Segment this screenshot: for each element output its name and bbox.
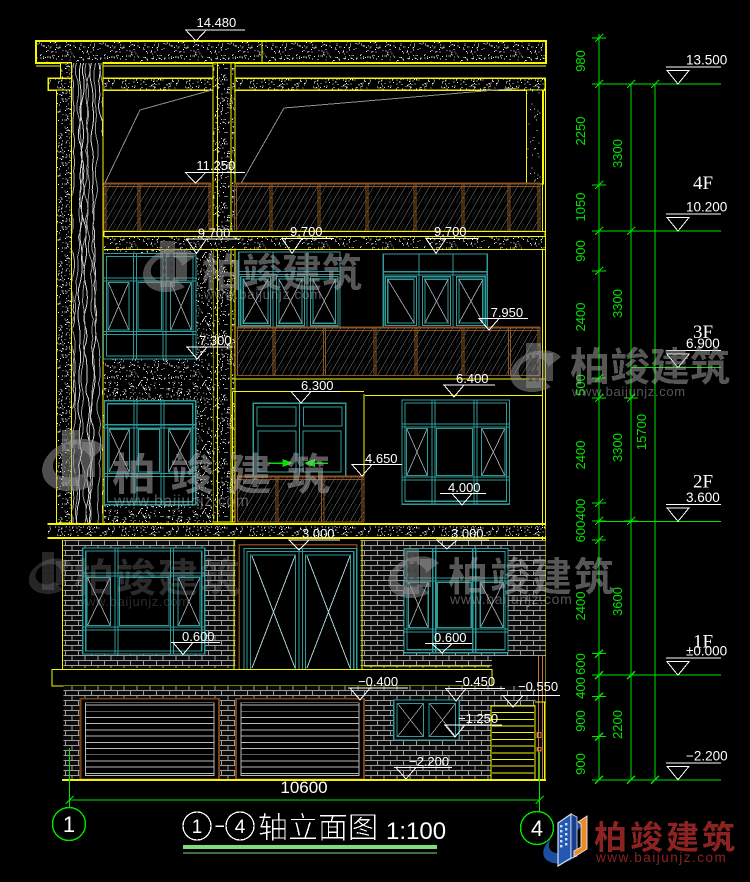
- svg-text:−1.250: −1.250: [458, 711, 498, 726]
- svg-text:www.baijunjz.com: www.baijunjz.com: [203, 287, 322, 302]
- svg-text:2400: 2400: [573, 303, 588, 332]
- svg-text:1F: 1F: [693, 632, 713, 653]
- svg-text:980: 980: [573, 50, 588, 72]
- svg-text:www.baijunjz.com: www.baijunjz.com: [571, 384, 686, 399]
- svg-text:7.300: 7.300: [199, 333, 232, 348]
- svg-text:−0.550: −0.550: [518, 679, 558, 694]
- svg-text:3300: 3300: [610, 139, 625, 168]
- svg-text:−2.200: −2.200: [409, 754, 449, 769]
- svg-text:4.000: 4.000: [448, 480, 481, 495]
- svg-text:900: 900: [573, 240, 588, 262]
- svg-text:9.700: 9.700: [198, 226, 231, 241]
- svg-text:1: 1: [63, 812, 75, 837]
- svg-text:10600: 10600: [280, 778, 327, 797]
- svg-text:13.500: 13.500: [686, 53, 727, 68]
- svg-text:0.600: 0.600: [434, 630, 467, 645]
- svg-text:400: 400: [573, 499, 588, 521]
- svg-text:4: 4: [235, 817, 246, 838]
- svg-text:2400: 2400: [573, 592, 588, 621]
- svg-text:600: 600: [573, 521, 588, 543]
- svg-text:2250: 2250: [573, 117, 588, 146]
- svg-text:2400: 2400: [573, 441, 588, 470]
- svg-text:15700: 15700: [634, 414, 649, 450]
- svg-text:1:100: 1:100: [386, 818, 446, 845]
- svg-text:4: 4: [531, 816, 543, 841]
- svg-text:www.baijunjz.com: www.baijunjz.com: [113, 493, 250, 510]
- svg-text:10.200: 10.200: [686, 200, 727, 215]
- svg-text:14.480: 14.480: [197, 15, 237, 30]
- svg-text:3F: 3F: [693, 322, 713, 343]
- svg-text:4F: 4F: [693, 173, 713, 194]
- svg-text:4.650: 4.650: [365, 451, 398, 466]
- svg-text:www.baijunjz.com: www.baijunjz.com: [449, 591, 572, 607]
- svg-text:www.baijunjz.com: www.baijunjz.com: [75, 594, 190, 609]
- svg-text:9.700: 9.700: [290, 224, 323, 239]
- svg-text:900: 900: [573, 753, 588, 775]
- svg-text:−2.200: −2.200: [686, 748, 728, 763]
- svg-text:−0.450: −0.450: [455, 674, 495, 689]
- svg-text:11.250: 11.250: [196, 158, 235, 173]
- svg-text:3.000: 3.000: [451, 526, 484, 541]
- svg-text:0.600: 0.600: [182, 629, 215, 644]
- svg-text:2F: 2F: [693, 472, 713, 493]
- svg-text:900: 900: [573, 710, 588, 732]
- svg-text:3.000: 3.000: [302, 526, 335, 541]
- svg-text:600: 600: [573, 653, 588, 675]
- svg-text:2200: 2200: [610, 710, 625, 739]
- svg-text:3300: 3300: [610, 433, 625, 462]
- svg-text:6.400: 6.400: [456, 371, 489, 386]
- svg-text:7.950: 7.950: [491, 305, 524, 320]
- svg-text:400: 400: [573, 677, 588, 699]
- svg-text:6.300: 6.300: [301, 378, 334, 393]
- svg-text:1050: 1050: [573, 193, 588, 222]
- svg-text:3300: 3300: [610, 289, 625, 318]
- svg-text:−0.400: −0.400: [358, 674, 398, 689]
- svg-text:www.baijunjz.com: www.baijunjz.com: [595, 850, 727, 865]
- svg-text:9.700: 9.700: [434, 224, 467, 239]
- svg-text:1: 1: [192, 817, 203, 838]
